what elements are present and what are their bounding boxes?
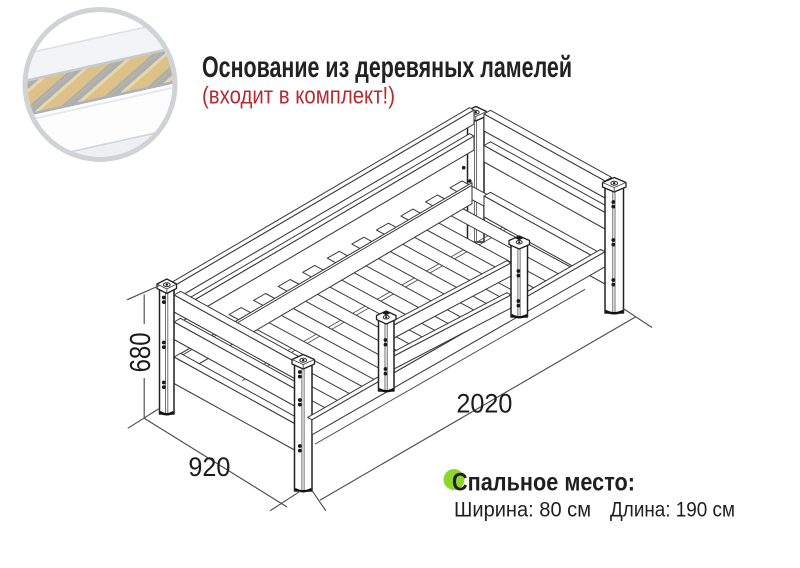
svg-text:Ширина: 80 см: Ширина: 80 см — [454, 498, 591, 522]
svg-text:Длина: 190 см: Длина: 190 см — [610, 498, 735, 522]
svg-text:2020: 2020 — [456, 389, 512, 419]
svg-text:920: 920 — [188, 452, 230, 482]
svg-text:Основание из деревяных ламелей: Основание из деревяных ламелей — [202, 51, 572, 84]
svg-text:Спальное место:: Спальное место: — [452, 469, 635, 497]
svg-text:(входит в комплект!): (входит в комплект!) — [202, 83, 395, 110]
svg-text:680: 680 — [125, 332, 157, 372]
